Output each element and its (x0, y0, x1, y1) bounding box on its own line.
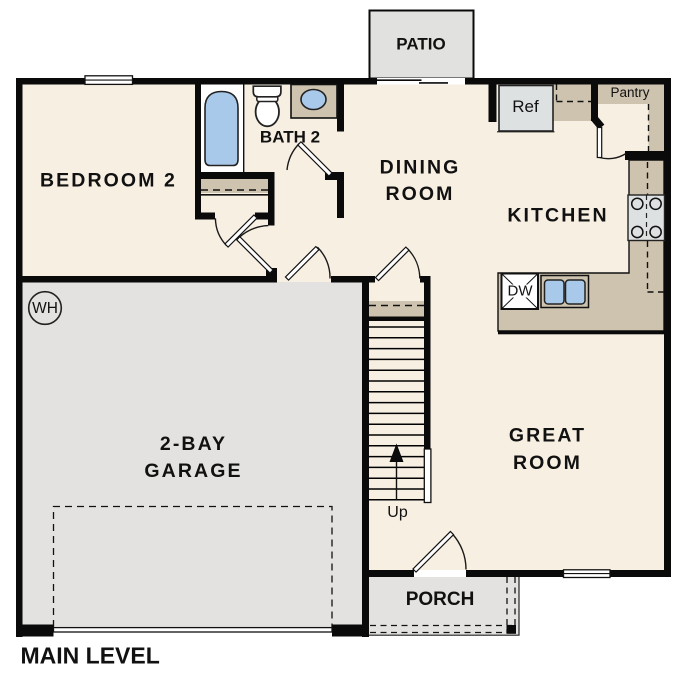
svg-text:WH: WH (32, 300, 58, 317)
svg-text:BATH 2: BATH 2 (260, 128, 320, 147)
svg-text:PATIO: PATIO (396, 35, 445, 54)
svg-text:DW: DW (508, 283, 534, 300)
svg-text:Up: Up (387, 504, 408, 521)
svg-text:ROOM: ROOM (513, 452, 582, 474)
svg-text:GARAGE: GARAGE (144, 460, 242, 482)
svg-text:PORCH: PORCH (406, 589, 475, 610)
svg-text:GREAT: GREAT (509, 425, 586, 447)
svg-text:BEDROOM 2: BEDROOM 2 (40, 170, 177, 192)
svg-text:MAIN LEVEL: MAIN LEVEL (21, 643, 160, 669)
svg-text:KITCHEN: KITCHEN (507, 205, 608, 227)
svg-text:Pantry: Pantry (610, 85, 649, 100)
svg-text:DINING: DINING (380, 157, 461, 179)
svg-text:Ref: Ref (512, 97, 539, 116)
svg-text:2-BAY: 2-BAY (160, 433, 227, 455)
svg-text:ROOM: ROOM (385, 183, 454, 205)
